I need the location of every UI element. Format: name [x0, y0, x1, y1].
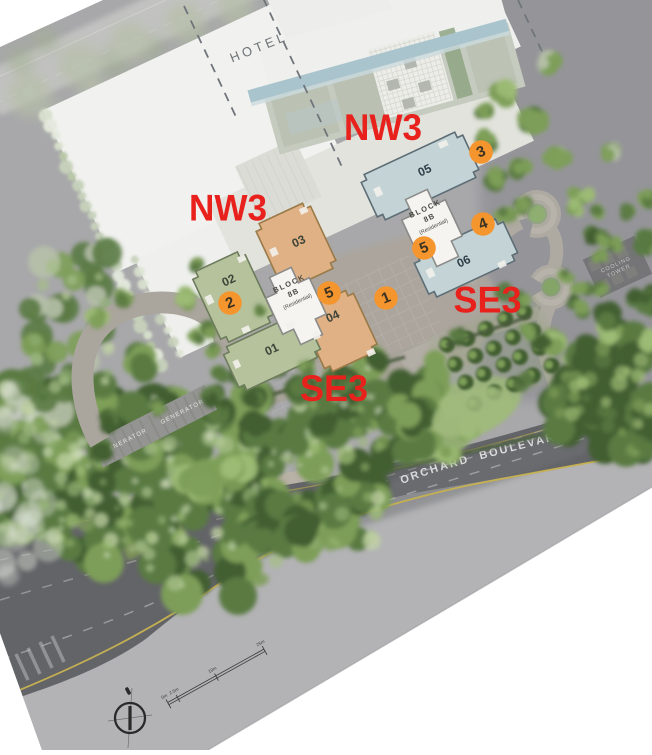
svg-text:NW3: NW3 [344, 107, 422, 148]
svg-text:SE3: SE3 [454, 280, 522, 321]
svg-text:SE3: SE3 [300, 368, 368, 409]
svg-text:NW3: NW3 [189, 188, 267, 229]
